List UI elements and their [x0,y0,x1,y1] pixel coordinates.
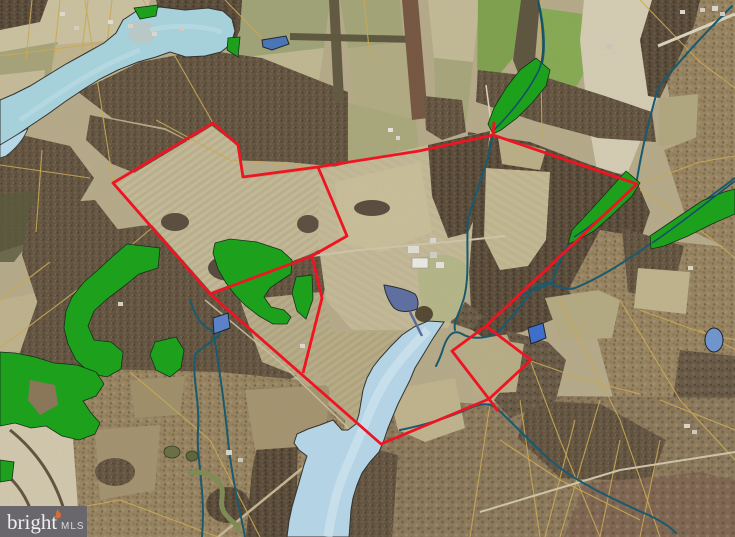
svg-text:MLS: MLS [61,521,85,532]
svg-text:bright: bright [7,510,57,534]
